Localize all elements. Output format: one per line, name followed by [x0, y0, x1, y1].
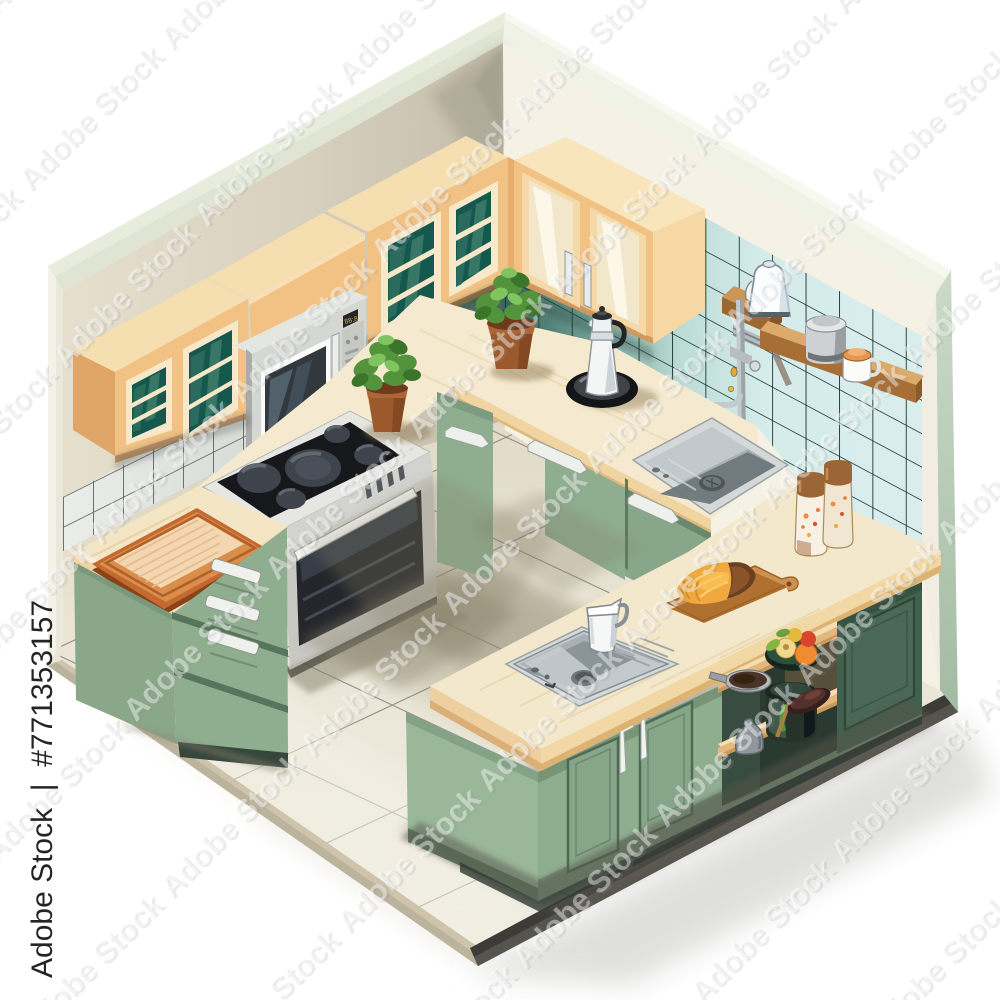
- svg-text:Adobe Stock | #771353157: Adobe Stock | #771353157: [26, 600, 59, 978]
